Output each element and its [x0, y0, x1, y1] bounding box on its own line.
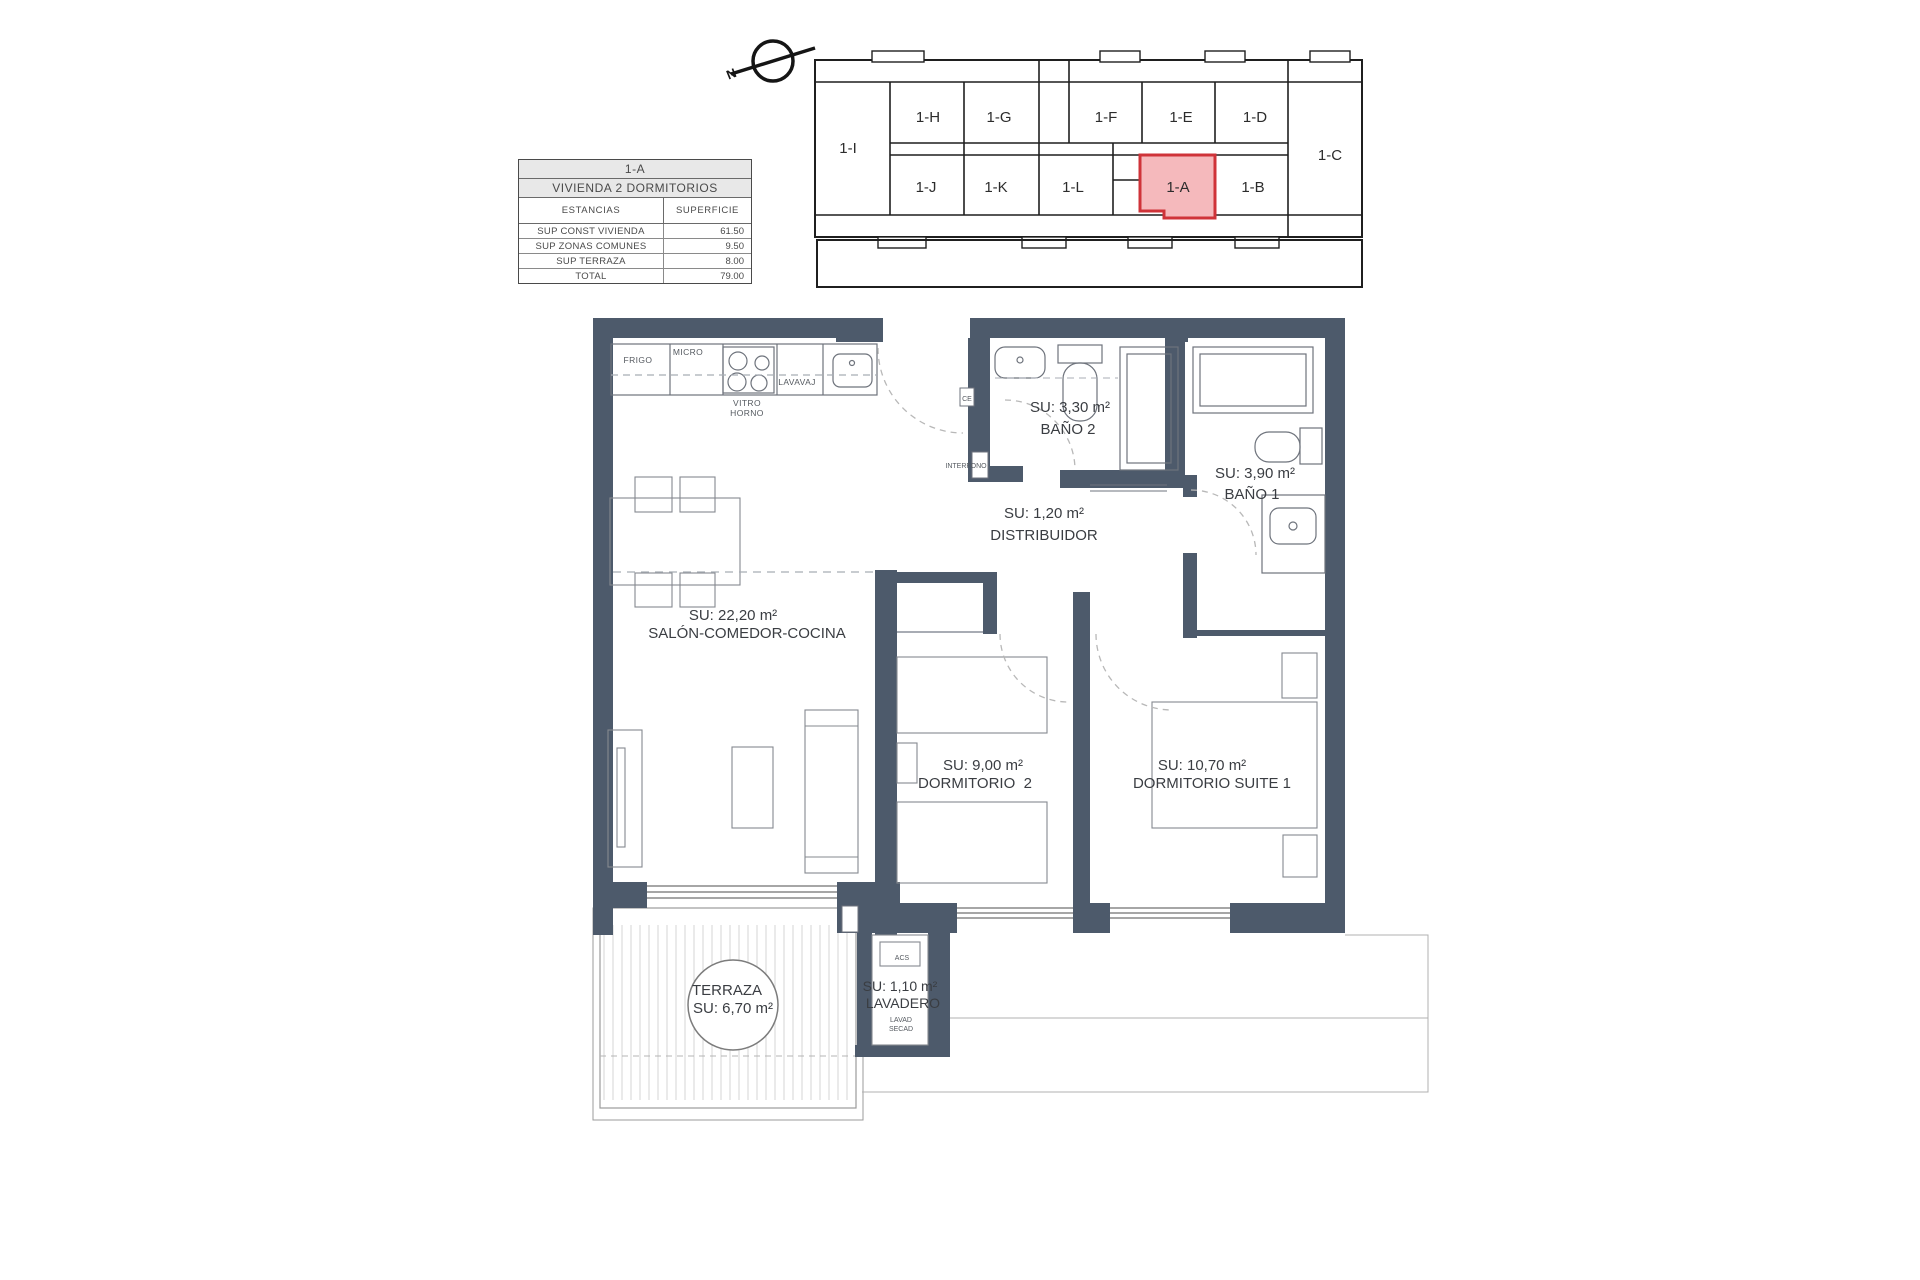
kitchen-counter: [611, 344, 877, 395]
bath1-name-label: BAÑO 1: [1224, 486, 1279, 503]
unit-label-1C: 1-C: [1318, 147, 1342, 164]
washer-label: LAVAD: [890, 1017, 912, 1024]
laundry-hatch-opening: [842, 906, 858, 932]
row-label: TOTAL: [519, 269, 664, 283]
bath1-area-label: SU: 3,90 m²: [1215, 465, 1295, 482]
hob-label: VITRO: [733, 398, 761, 408]
unit-label-1F: 1-F: [1095, 109, 1118, 126]
bath2-name-label: BAÑO 2: [1040, 421, 1095, 438]
fridge-label: FRIGO: [624, 355, 653, 365]
unit-label-1H: 1-H: [916, 109, 940, 126]
unit-label-1E: 1-E: [1169, 109, 1192, 126]
salon-name-label: SALÓN-COMEDOR-COCINA: [648, 625, 846, 642]
row-value: 8.00: [664, 254, 751, 268]
ce-label: CE: [962, 396, 972, 403]
row-value: 9.50: [664, 239, 751, 253]
bathroom1-fixtures: [1193, 347, 1325, 573]
table-row: TOTAL 79.00: [519, 269, 751, 283]
laundry-name-label: LAVADERO: [866, 995, 940, 1011]
coffee-table: [732, 747, 773, 828]
table-row: SUP CONST VIVIENDA 61.50: [519, 224, 751, 239]
unit-label-1L: 1-L: [1062, 179, 1084, 196]
bath2-area-label: SU: 3,30 m²: [1030, 399, 1110, 416]
terrace-name-label: TERRAZA: [692, 982, 762, 999]
salon-furniture: [608, 477, 858, 873]
unit-label-1D: 1-D: [1243, 109, 1267, 126]
architectural-plan-canvas: N: [0, 0, 1920, 1280]
unit-label-1B: 1-B: [1241, 179, 1264, 196]
row-label: SUP TERRAZA: [519, 254, 664, 268]
bath2-toilet: [1058, 345, 1102, 363]
entrance-door-arc: [878, 348, 963, 433]
north-compass-icon: N: [724, 41, 815, 83]
row-label: SUP ZONAS COMUNES: [519, 239, 664, 253]
row-value: 79.00: [664, 269, 751, 283]
table-row: SUP ZONAS COMUNES 9.50: [519, 239, 751, 254]
terrace-area-label: SU: 6,70 m²: [693, 1000, 773, 1017]
facade-tabs-bottom: [878, 237, 1279, 248]
suite-nightstand-2: [1283, 835, 1317, 877]
key-plan: [815, 51, 1362, 287]
laundry-area-label: SU: 1,10 m²: [863, 978, 938, 994]
unit-label-1G: 1-G: [986, 109, 1011, 126]
unit-label-1K: 1-K: [984, 179, 1007, 196]
oven-label: HORNO: [730, 408, 764, 418]
unit-label-1I: 1-I: [839, 140, 857, 157]
acs-label: ACS: [895, 955, 910, 962]
dryer-label: SECAD: [889, 1026, 913, 1033]
table-title-unit: 1-A: [519, 160, 751, 179]
key-plan-labels: 1-I 1-H 1-G 1-F 1-E 1-D 1-C 1-J 1-K 1-L …: [839, 109, 1342, 196]
bed-single-1: [897, 657, 1047, 733]
table-column-headers: ESTANCIAS SUPERFICIE: [519, 198, 751, 224]
bed-single-2: [897, 802, 1047, 883]
suite-name-label: DORMITORIO SUITE 1: [1133, 775, 1291, 792]
surface-info-table: 1-A VIVIENDA 2 DORMITORIOS ESTANCIAS SUP…: [518, 159, 752, 284]
bath1-sink: [1270, 508, 1316, 544]
walls: [593, 318, 1345, 1057]
floor-plan-page: { "colors": { "wall": "#4d5a6b", "highli…: [0, 0, 1920, 1280]
suite-nightstand-1: [1282, 653, 1317, 698]
row-value: 61.50: [664, 224, 751, 238]
nightstand: [897, 743, 917, 783]
table-row: SUP TERRAZA 8.00: [519, 254, 751, 269]
col-header-estancias: ESTANCIAS: [519, 198, 664, 223]
suite-area-label: SU: 10,70 m²: [1158, 757, 1246, 774]
hall-area-label: SU: 1,20 m²: [1004, 505, 1084, 522]
bath1-toilet: [1300, 428, 1322, 464]
hall-name-label: DISTRIBUIDOR: [990, 527, 1098, 544]
microwave-label: MICRO: [673, 347, 703, 357]
room-labels: SU: 22,20 m² SALÓN-COMEDOR-COCINA SU: 3,…: [648, 399, 1295, 1017]
north-label: N: [724, 65, 738, 82]
unit-label-1A: 1-A: [1166, 179, 1189, 196]
kitchen-sink: [833, 354, 872, 387]
bath1-shower-tray: [1193, 347, 1313, 413]
dishwasher-label: LAVAVAJ: [778, 377, 816, 387]
intercom-label: INTERFONO: [945, 463, 987, 470]
bedroom2-area-label: SU: 9,00 m²: [943, 757, 1023, 774]
sofa: [805, 710, 858, 873]
bedroom2-name-label: DORMITORIO 2: [918, 775, 1032, 792]
table-subtitle: VIVIENDA 2 DORMITORIOS: [519, 179, 751, 198]
acs-unit: [880, 942, 920, 966]
salon-area-label: SU: 22,20 m²: [689, 607, 777, 624]
row-label: SUP CONST VIVIENDA: [519, 224, 664, 238]
unit-label-1J: 1-J: [916, 179, 937, 196]
bedroom2-door-arc: [1000, 634, 1068, 702]
suite-door-arc: [1096, 634, 1172, 710]
col-header-superficie: SUPERFICIE: [664, 198, 751, 223]
